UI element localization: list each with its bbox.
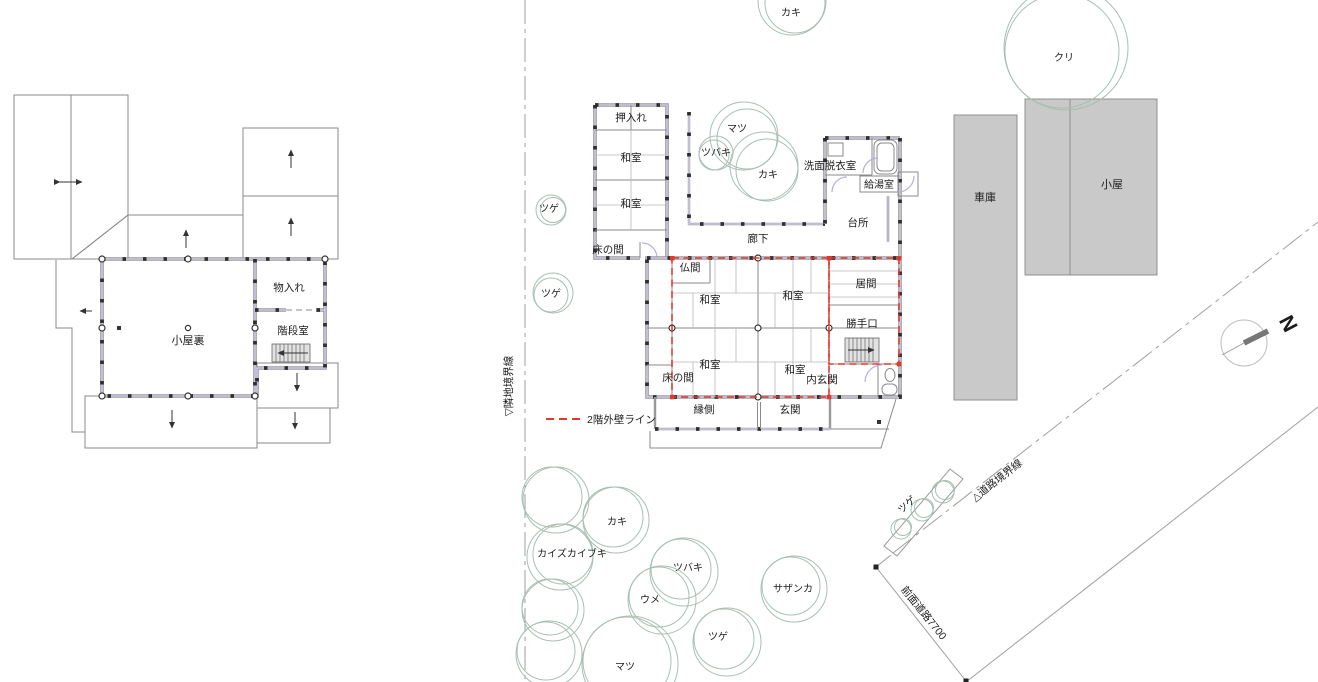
- butsuma-label: 仏間: [680, 262, 701, 274]
- washitsu-ne-label: 和室: [783, 289, 804, 302]
- water-heater-label: 給湯室: [864, 178, 894, 191]
- first-floor-plan: 押入れ 和室 和室 床の間 廊下 洗面脱衣室 給湯室 台所 仏間 和室 和室 居…: [592, 105, 918, 448]
- tree-unlabeled-1: [522, 467, 589, 533]
- legend-second-floor-wall: 2階外壁ライン: [546, 413, 656, 426]
- svg-text:マツ: マツ: [727, 124, 747, 135]
- svg-text:クリ: クリ: [1054, 52, 1074, 64]
- svg-text:マツ: マツ: [615, 662, 635, 673]
- tree-sazanka: サザンカ: [761, 556, 827, 622]
- tree-tsubaki-top: ツバキ: [699, 136, 733, 170]
- attic-stairs: [272, 344, 310, 362]
- svg-text:ツバキ: ツバキ: [701, 147, 731, 159]
- svg-text:ツゲ: ツゲ: [708, 631, 728, 643]
- tree-kaki-mid: カキ: [730, 132, 798, 201]
- svg-text:サザンカ: サザンカ: [773, 583, 813, 595]
- svg-text:カイズカイブキ: カイズカイブキ: [537, 547, 607, 560]
- corridor-label: 廊下: [748, 232, 769, 245]
- site-plan-drawing: 小屋裏 物入れ 階段室: [0, 0, 1318, 682]
- svg-text:カキ: カキ: [607, 516, 627, 528]
- tree-kaizukaibuki: カイズカイブキ: [527, 524, 607, 590]
- tree-matsu-south: マツ: [582, 616, 678, 682]
- tokonoma-main-label: 床の間: [662, 371, 694, 384]
- tree-matsu-top: マツ: [710, 102, 778, 170]
- hedge-tsuge: ツゲ: [884, 469, 963, 556]
- first-floor-stairs: [845, 338, 879, 362]
- washitsu-se-label: 和室: [785, 363, 806, 376]
- svg-text:ウメ: ウメ: [640, 594, 660, 606]
- garage-label: 車庫: [974, 190, 996, 204]
- legend-label: 2階外壁ライン: [587, 413, 656, 426]
- tree-unlabeled-2: [522, 579, 584, 641]
- svg-text:ツゲ: ツゲ: [896, 494, 919, 516]
- north-compass: N: [1221, 312, 1301, 366]
- svg-text:カキ: カキ: [781, 7, 801, 19]
- road-boundary-label: △道路境界線: [969, 456, 1025, 504]
- tree-tsuge-south: ツゲ: [693, 608, 761, 676]
- svg-text:カキ: カキ: [758, 169, 778, 181]
- road-width-dimension-line: [876, 567, 966, 681]
- neighbor-boundary-label: ▽隣地境界線: [502, 355, 515, 416]
- trees: カキ クリ マツ ツバキ カキ ツゲ ツゲ: [516, 0, 1128, 682]
- back-door-label: 勝手口: [846, 317, 878, 330]
- tree-tsubaki-sw: ツバキ: [650, 538, 718, 606]
- tree-kaki-top: カキ: [758, 0, 826, 35]
- tree-tsuge-left-lower: ツゲ: [533, 273, 573, 313]
- svg-text:ツゲ: ツゲ: [541, 288, 561, 300]
- stair-room-label: 階段室: [277, 324, 309, 337]
- shed-label: 小屋: [1101, 178, 1123, 191]
- storage-label: 物入れ: [273, 281, 305, 294]
- kitchen-label: 台所: [848, 216, 869, 229]
- washitsu-annex-south-label: 和室: [621, 197, 642, 210]
- tree-kaki-sw: カキ: [583, 487, 649, 553]
- front-road-label: 前面道路7700: [898, 583, 949, 642]
- living-label: 居間: [856, 278, 877, 290]
- attic-label: 小屋裏: [172, 333, 205, 347]
- boundary-lines: [525, 0, 1318, 682]
- svg-text:ツバキ: ツバキ: [673, 562, 703, 574]
- oshiire-label: 押入れ: [615, 111, 647, 124]
- attic-walls: 小屋裏 物入れ 階段室: [99, 256, 328, 399]
- north-letter: N: [1274, 312, 1301, 336]
- washitsu-annex-north-label: 和室: [621, 151, 642, 164]
- tree-unlabeled-3: [516, 621, 582, 682]
- washroom-label: 洗面脱衣室: [804, 159, 857, 172]
- garage-building: [954, 115, 1017, 400]
- inner-entrance-label: 内玄関: [806, 373, 838, 386]
- washitsu-nw-label: 和室: [700, 293, 721, 306]
- tokonoma-annex-label: 床の間: [592, 243, 624, 256]
- road-far-edge-line: [966, 407, 1318, 682]
- veranda-label: 縁側: [694, 403, 715, 416]
- tree-kuri: クリ: [1004, 0, 1128, 110]
- entrance-label: 玄関: [780, 403, 801, 416]
- tree-tsuge-left-upper: ツゲ: [536, 195, 566, 225]
- tree-ume: ウメ: [628, 566, 696, 634]
- washitsu-sw-label: 和室: [700, 358, 721, 371]
- svg-text:ツゲ: ツゲ: [539, 203, 559, 215]
- plan-svg: 小屋裏 物入れ 階段室: [0, 0, 1318, 682]
- shed-building: [1025, 99, 1157, 275]
